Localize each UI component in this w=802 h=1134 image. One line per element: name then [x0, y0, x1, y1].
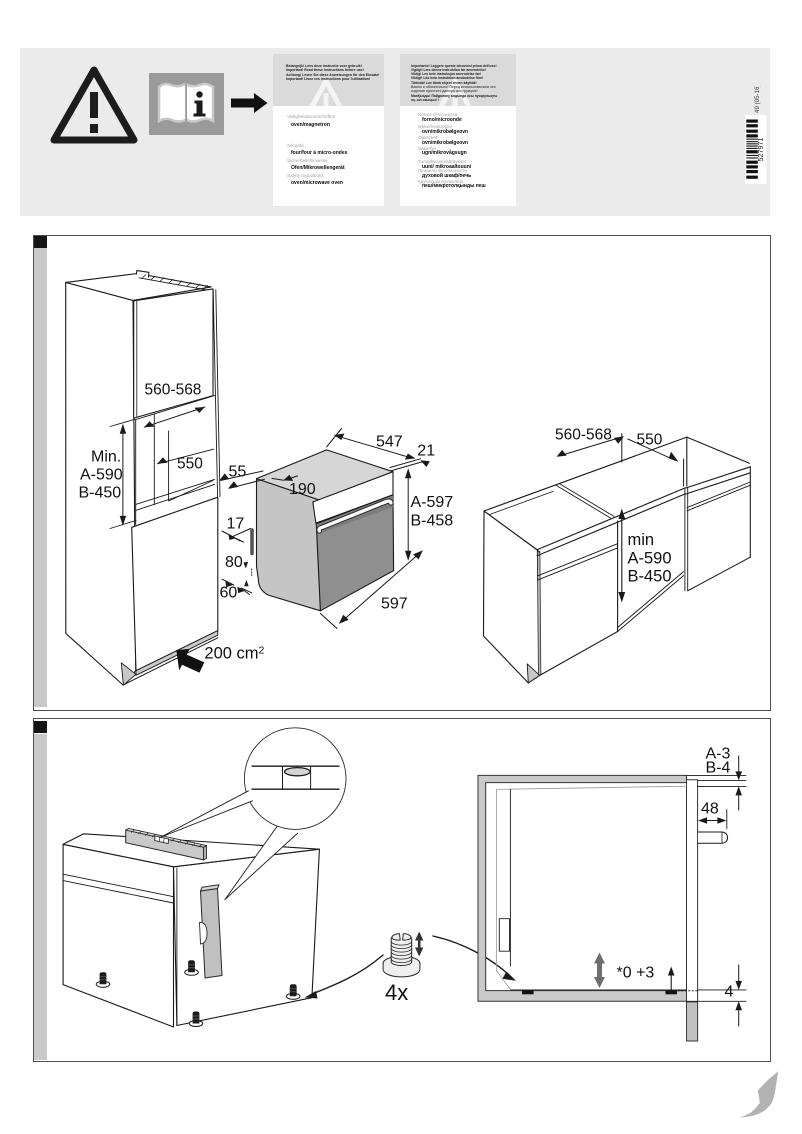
svg-text:B-450: B-450 [628, 568, 672, 586]
svg-text:560-568: 560-568 [145, 382, 202, 399]
svg-text:560-568: 560-568 [555, 427, 612, 444]
svg-text:A-590: A-590 [80, 467, 123, 484]
svg-text:527971: 527971 [756, 138, 765, 162]
svg-text:*0 +3: *0 +3 [617, 965, 655, 982]
svg-text:49 (05-16): 49 (05-16) [754, 86, 761, 113]
svg-text:55: 55 [229, 464, 247, 481]
svg-text:550: 550 [637, 432, 663, 449]
svg-text:Min.: Min. [91, 449, 121, 466]
svg-text:B-4: B-4 [706, 760, 731, 777]
svg-text:21: 21 [417, 442, 435, 459]
svg-text:A-590: A-590 [628, 550, 672, 568]
svg-text:48: 48 [701, 801, 719, 818]
svg-text:4x: 4x [385, 980, 408, 1005]
svg-text:min: min [628, 531, 655, 549]
svg-text:60: 60 [220, 585, 238, 602]
svg-text:17: 17 [227, 516, 245, 533]
svg-text:200 cm2: 200 cm2 [204, 645, 264, 663]
svg-text:550: 550 [177, 456, 203, 473]
svg-text:597: 597 [381, 596, 408, 613]
svg-text:B-450: B-450 [79, 485, 122, 502]
svg-text:547: 547 [376, 434, 403, 451]
svg-text:A-597: A-597 [411, 494, 454, 511]
svg-text:190: 190 [289, 481, 316, 498]
svg-text:B-458: B-458 [411, 513, 454, 530]
svg-text:4: 4 [725, 984, 734, 1001]
svg-text:80: 80 [225, 554, 243, 571]
